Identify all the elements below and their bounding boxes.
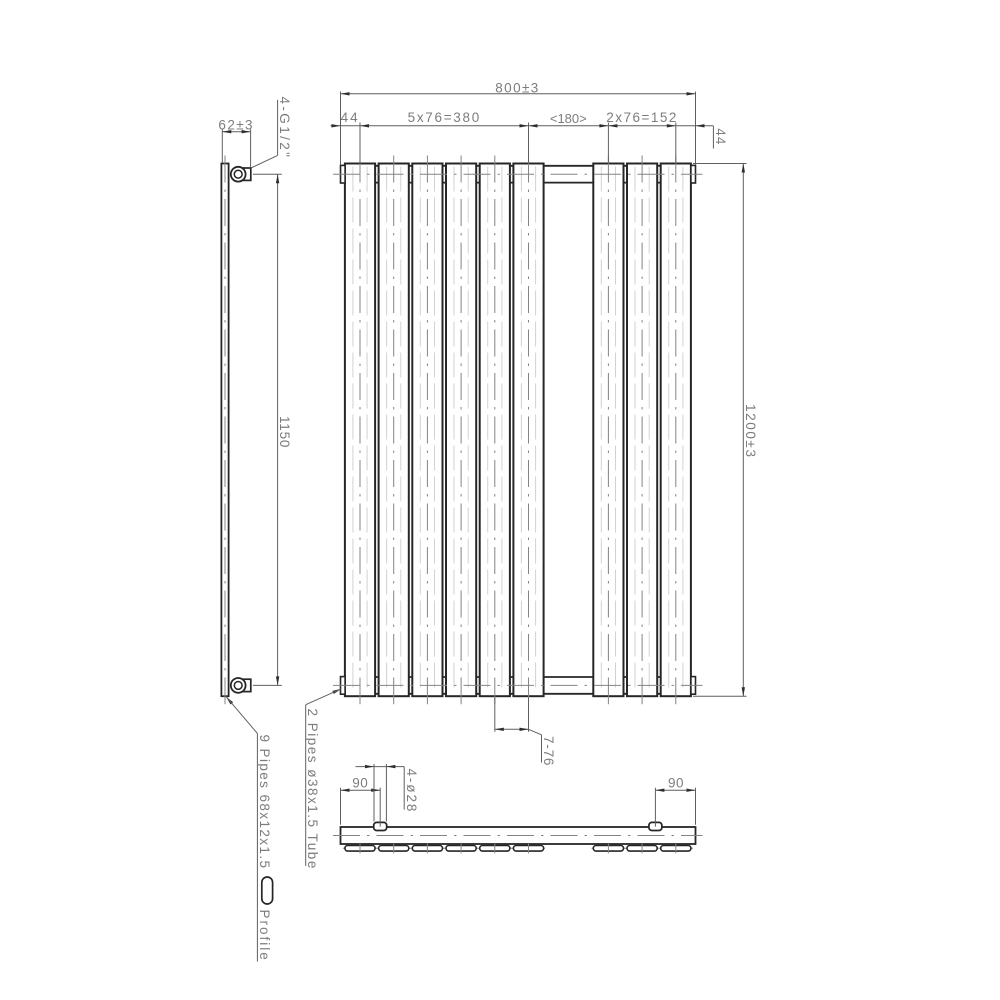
svg-text:4-G1/2": 4-G1/2"	[277, 97, 292, 160]
svg-text:4-ø28: 4-ø28	[404, 769, 419, 814]
svg-text:62±3: 62±3	[218, 118, 254, 133]
svg-text:800±3: 800±3	[495, 80, 539, 95]
svg-text:Profile: Profile	[257, 910, 272, 962]
svg-text:9 Pipes 68x12x1.5: 9 Pipes 68x12x1.5	[257, 735, 272, 870]
svg-text:2x76=152: 2x76=152	[606, 110, 678, 125]
svg-text:2 Pipes ø38x1.5 Tube: 2 Pipes ø38x1.5 Tube	[305, 709, 320, 870]
svg-text:<180>: <180>	[550, 111, 587, 126]
svg-text:1200±3: 1200±3	[743, 404, 758, 459]
svg-text:90: 90	[668, 775, 684, 790]
svg-text:5x76=380: 5x76=380	[408, 110, 481, 125]
svg-text:44: 44	[713, 128, 728, 145]
svg-text:90: 90	[352, 775, 368, 790]
svg-text:1150: 1150	[277, 416, 292, 448]
svg-text:44: 44	[341, 110, 360, 125]
svg-text:7-76: 7-76	[541, 736, 556, 766]
